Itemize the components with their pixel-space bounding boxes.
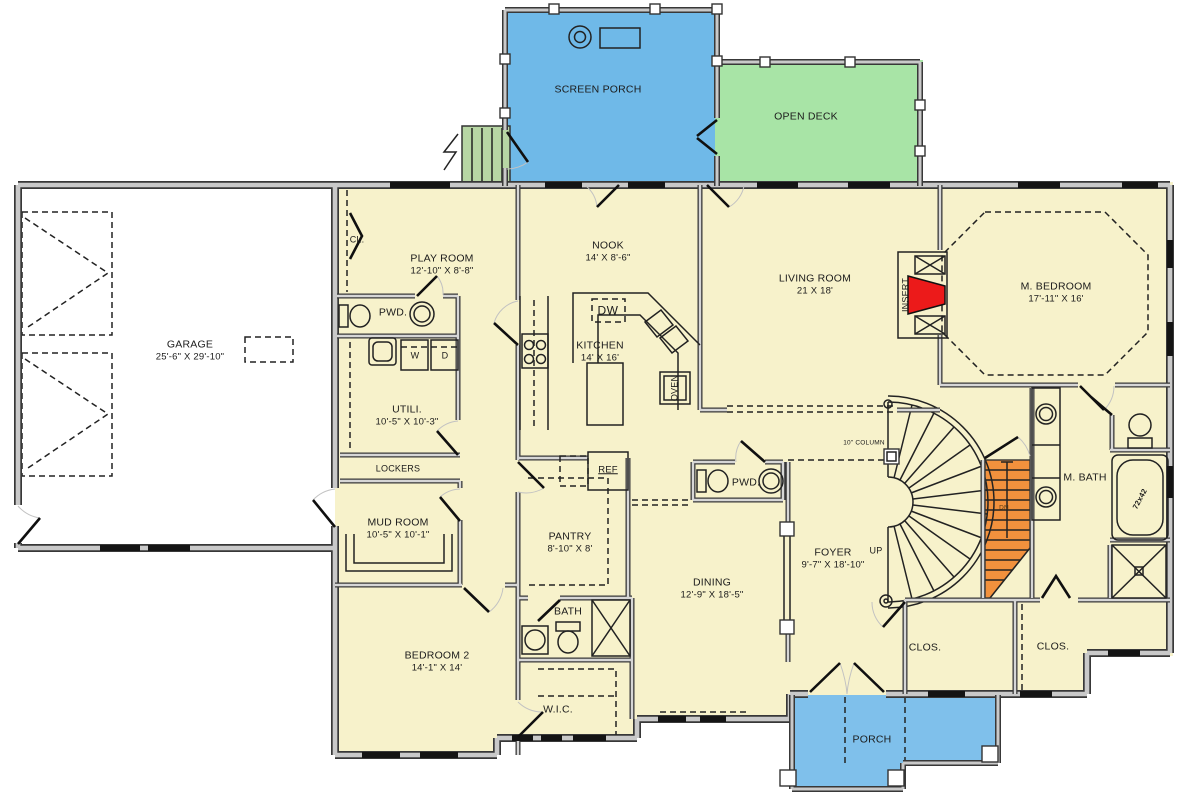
- floor-plan: SCREEN PORCH OPEN DECK GARAGE25'-6" X 29…: [0, 0, 1179, 799]
- dining-column: [780, 620, 794, 634]
- dining-column: [780, 522, 794, 536]
- floor-plan-drawing: [0, 0, 1179, 799]
- floor-fills: [18, 8, 1173, 789]
- porch-column: [780, 770, 796, 786]
- porch-column: [888, 770, 904, 786]
- porch-column: [982, 746, 998, 762]
